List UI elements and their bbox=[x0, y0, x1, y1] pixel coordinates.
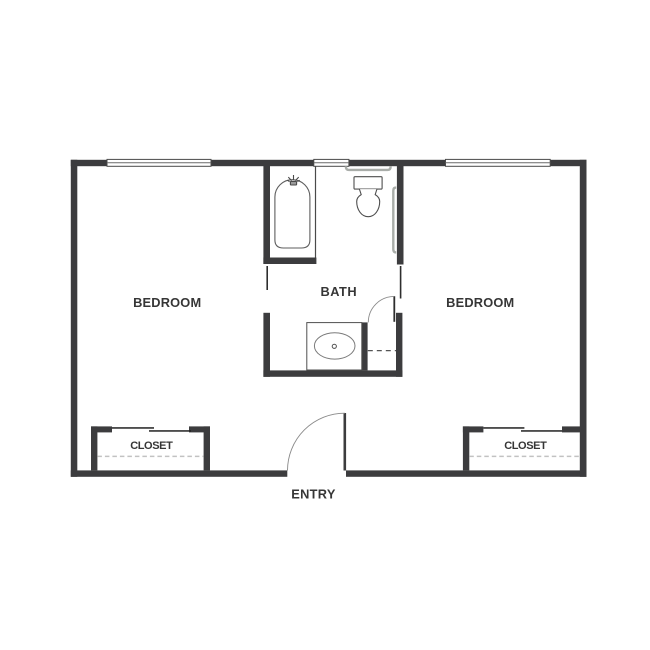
svg-text:BEDROOM: BEDROOM bbox=[133, 295, 201, 310]
svg-text:BEDROOM: BEDROOM bbox=[446, 295, 514, 310]
svg-text:CLOSET: CLOSET bbox=[504, 440, 547, 452]
svg-text:CLOSET: CLOSET bbox=[130, 440, 173, 452]
svg-text:ENTRY: ENTRY bbox=[291, 487, 336, 502]
svg-text:BATH: BATH bbox=[321, 284, 358, 299]
